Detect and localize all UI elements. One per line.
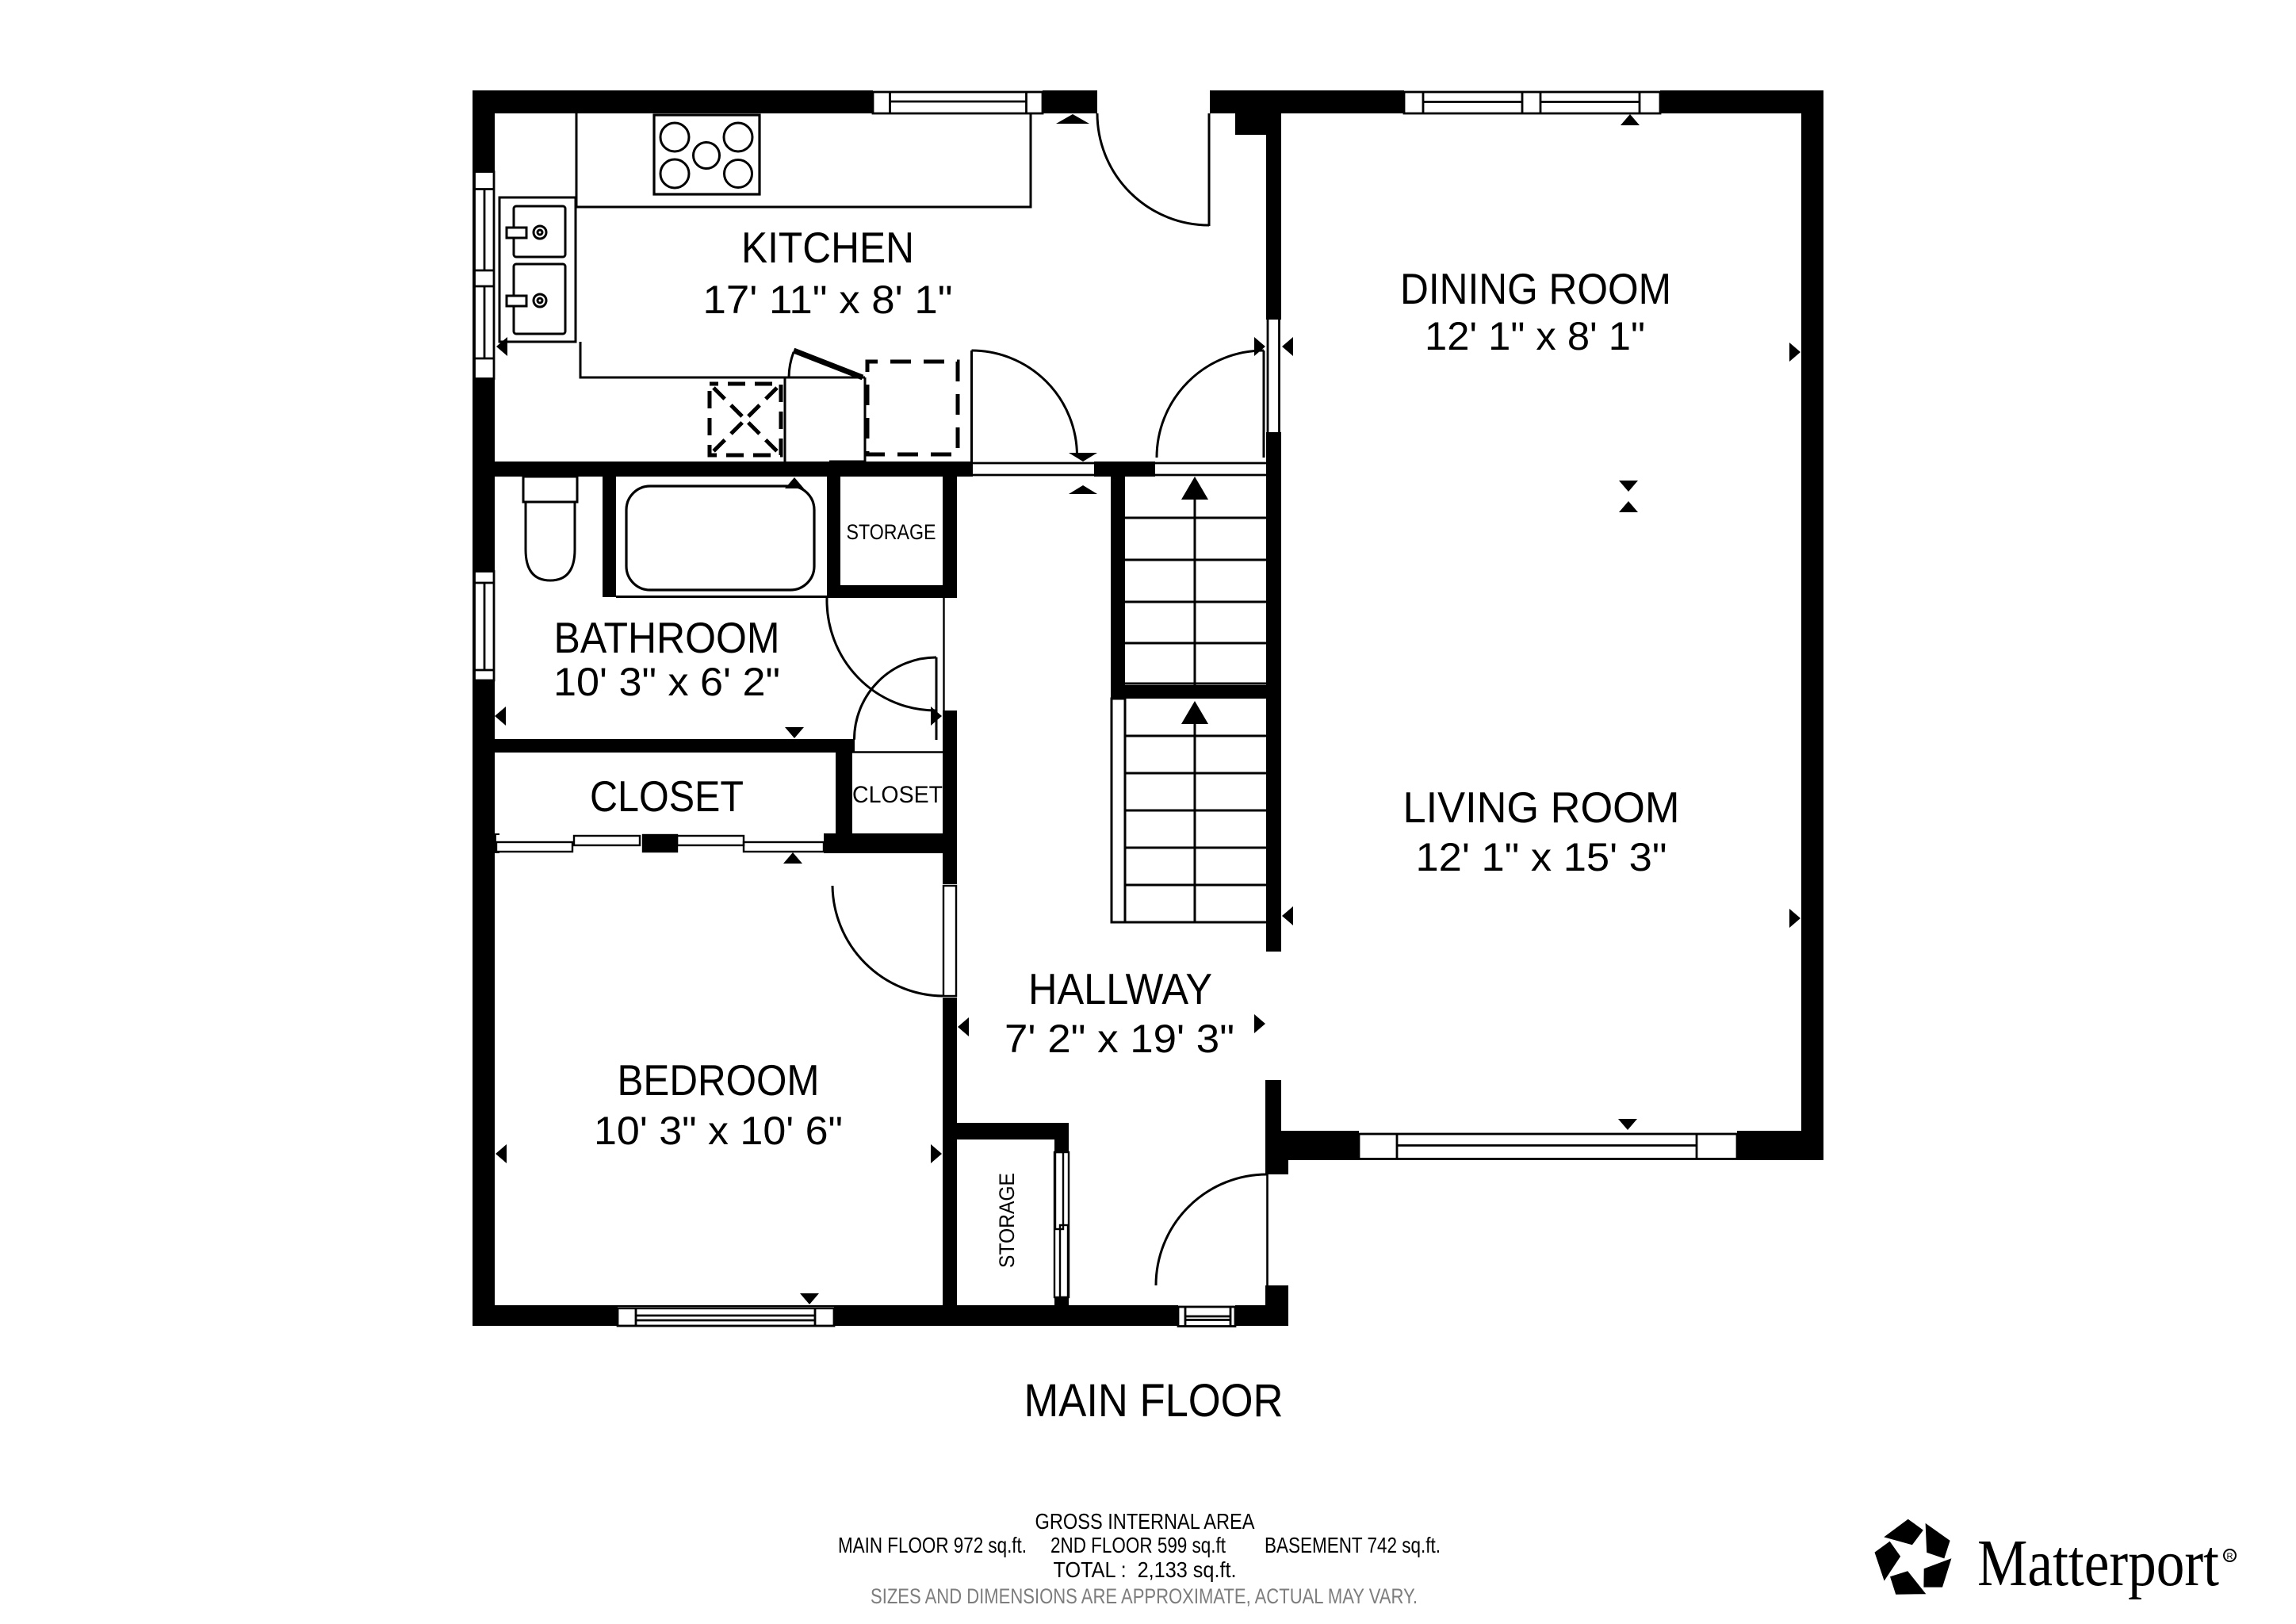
svg-text:STORAGE: STORAGE	[995, 1173, 1019, 1268]
svg-text:STORAGE: STORAGE	[847, 520, 936, 544]
svg-text:HALLWAY: HALLWAY	[1028, 964, 1212, 1013]
svg-text:MAIN FLOOR: MAIN FLOOR	[1024, 1375, 1284, 1427]
svg-text:10' 3" x 6' 2": 10' 3" x 6' 2"	[553, 660, 780, 704]
svg-text:Matterport: Matterport	[1977, 1526, 2219, 1600]
svg-text:KITCHEN: KITCHEN	[741, 223, 914, 272]
svg-text:10' 3" x 10' 6": 10' 3" x 10' 6"	[594, 1109, 843, 1153]
svg-text:12' 1" x 15' 3": 12' 1" x 15' 3"	[1416, 835, 1667, 879]
svg-text:DINING ROOM: DINING ROOM	[1400, 264, 1671, 313]
svg-text:R: R	[2227, 1552, 2233, 1561]
svg-text:2ND FLOOR 599 sq.ft: 2ND FLOOR 599 sq.ft	[1050, 1533, 1226, 1557]
svg-text:MAIN FLOOR 972 sq.ft.: MAIN FLOOR 972 sq.ft.	[838, 1533, 1027, 1557]
svg-text:CLOSET: CLOSET	[590, 772, 744, 821]
svg-text:BASEMENT 742 sq.ft.: BASEMENT 742 sq.ft.	[1265, 1533, 1441, 1557]
svg-text:17' 11" x 8' 1": 17' 11" x 8' 1"	[703, 278, 953, 322]
svg-text:12' 1" x 8' 1": 12' 1" x 8' 1"	[1425, 314, 1645, 358]
svg-text:BEDROOM: BEDROOM	[618, 1055, 820, 1105]
svg-text:SIZES AND DIMENSIONS ARE APPRO: SIZES AND DIMENSIONS ARE APPROXIMATE, AC…	[871, 1584, 1418, 1608]
svg-text:7' 2" x 19' 3": 7' 2" x 19' 3"	[1004, 1017, 1234, 1061]
svg-text:GROSS INTERNAL AREA: GROSS INTERNAL AREA	[1035, 1509, 1255, 1534]
svg-text:CLOSET: CLOSET	[852, 782, 943, 808]
svg-text:LIVING ROOM: LIVING ROOM	[1403, 783, 1680, 832]
svg-text:BATHROOM: BATHROOM	[554, 613, 780, 662]
svg-text:TOTAL : 2,133 sq.ft.: TOTAL : 2,133 sq.ft.	[1054, 1557, 1237, 1582]
